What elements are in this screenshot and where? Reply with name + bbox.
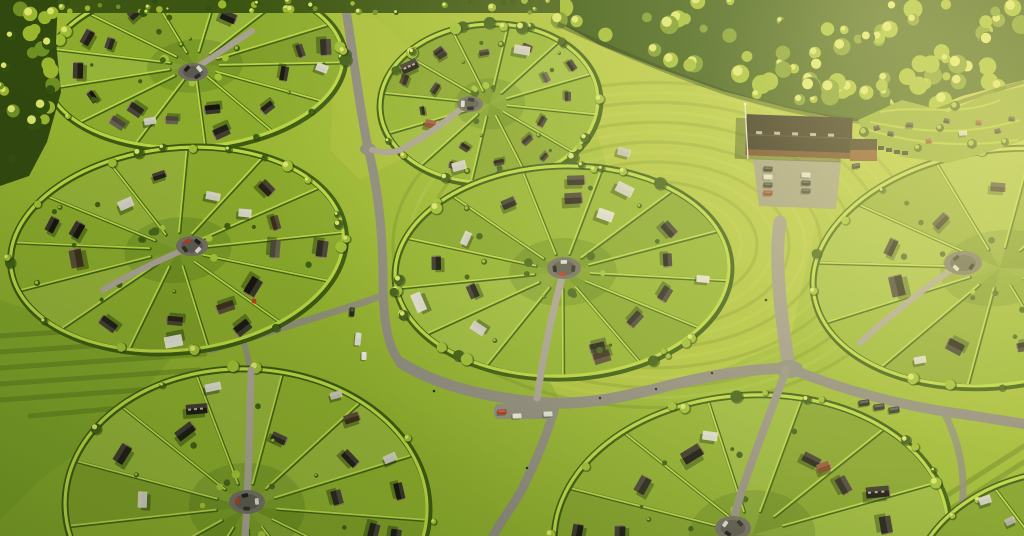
aerial-photo xyxy=(0,0,1024,536)
aerial-photo-svg xyxy=(0,0,1024,536)
corner-vignette xyxy=(0,0,1024,536)
